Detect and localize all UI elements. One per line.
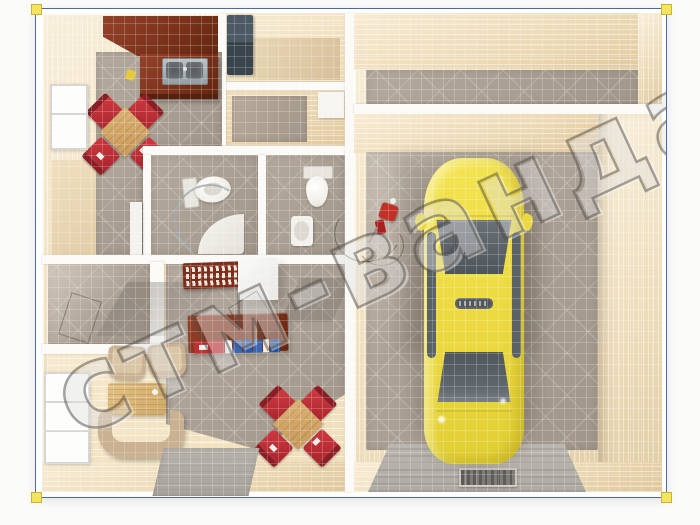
- faucet: [183, 67, 187, 71]
- window-mullion: [46, 401, 88, 403]
- car: [424, 158, 524, 466]
- red-equipment: [370, 196, 414, 260]
- car-side-window-right: [512, 232, 521, 358]
- car-roof-badge: [455, 298, 493, 309]
- gray-walkway: [152, 448, 259, 496]
- basin-bowl: [294, 221, 309, 241]
- garage-right-wall: [598, 114, 662, 492]
- armchair-seat: [151, 346, 183, 372]
- cup: [152, 389, 158, 395]
- sink-basin: [186, 62, 203, 79]
- kitchen-double-sink: [162, 58, 208, 85]
- door-panel: [318, 92, 344, 118]
- garage-top-wall: [354, 114, 598, 154]
- plan-frame: стм-ванда: [35, 8, 667, 498]
- boiler-room-floor: [232, 96, 307, 142]
- drain-grate: [459, 468, 517, 487]
- hood-seam: [434, 215, 514, 217]
- equipment-cap: [390, 198, 396, 204]
- workshop-right-wall: [638, 13, 662, 104]
- car-rear-window: [436, 352, 512, 402]
- badge-lettering-illegible: [459, 301, 489, 306]
- paint-glint: [438, 416, 445, 423]
- chair-tag: [312, 437, 320, 445]
- wc-toilet: [303, 166, 333, 210]
- sink-basin: [166, 62, 183, 79]
- partition-wall: [143, 146, 345, 155]
- armchair: [107, 345, 147, 381]
- toilet-bowl: [306, 176, 328, 207]
- window-mullion: [46, 430, 88, 432]
- selection-handle-top-left: [31, 4, 42, 15]
- selection-handle-bottom-right: [661, 492, 672, 503]
- bathroom-door-panel: [130, 202, 142, 256]
- book: [233, 340, 242, 353]
- floor-plan-image: стм-ванда: [0, 0, 700, 525]
- paint-glint: [500, 398, 506, 404]
- armchair-seat: [111, 348, 142, 374]
- window: [50, 84, 88, 150]
- trunk-seam: [436, 410, 512, 412]
- selection-handle-top-right: [661, 4, 672, 15]
- pantry-floor: [253, 38, 340, 80]
- book-label: [199, 345, 208, 350]
- fridge-cabinet: [227, 15, 253, 75]
- workshop-garage-wall: [354, 104, 662, 114]
- partition-wall: [226, 82, 345, 90]
- book: [263, 339, 269, 352]
- workshop-top-wall: [354, 13, 662, 70]
- wash-basin: [291, 216, 313, 246]
- window-mullion: [52, 113, 86, 115]
- book: [194, 340, 224, 354]
- window: [44, 372, 90, 464]
- book-row: [194, 339, 280, 354]
- partition-wall: [143, 155, 151, 255]
- chair-tag: [96, 152, 104, 160]
- car-windshield: [434, 220, 514, 274]
- selection-handle-bottom-left: [31, 492, 42, 503]
- book: [270, 339, 280, 352]
- chair-tag: [269, 444, 277, 452]
- armchair: [147, 343, 187, 380]
- hall-floor: [52, 160, 96, 255]
- book: [225, 340, 232, 353]
- workshop-floor: [366, 70, 640, 104]
- partition-wall: [258, 155, 266, 255]
- car-side-window-left: [427, 232, 436, 358]
